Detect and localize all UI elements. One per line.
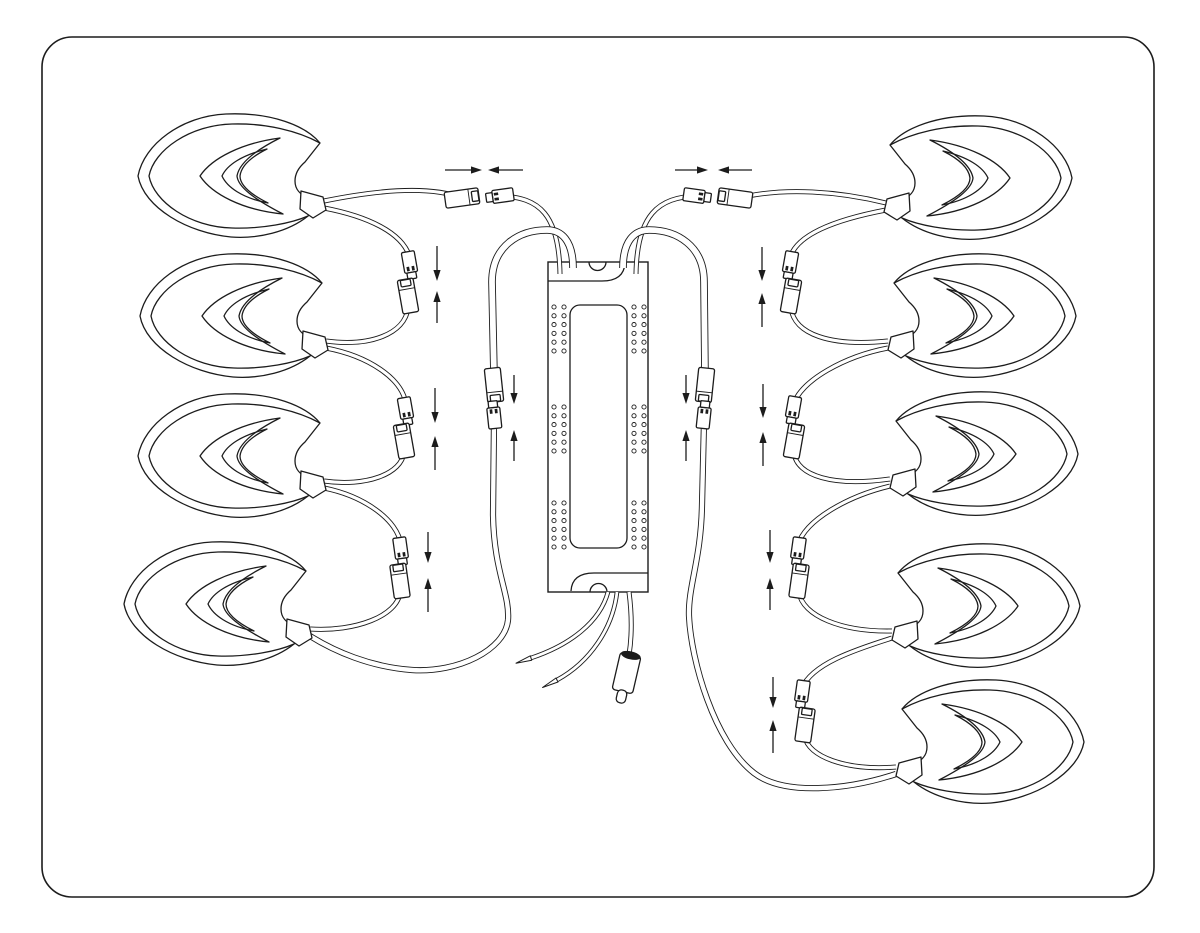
leaf-light-wiring-diagram [0,0,1200,933]
driver-label-panel [570,305,627,548]
female-connector-left-return-female [484,367,503,402]
diagram-page [0,0,1200,933]
plug-cable [629,592,631,655]
female-connector-right-return-female [695,367,714,402]
led-driver [548,262,648,592]
